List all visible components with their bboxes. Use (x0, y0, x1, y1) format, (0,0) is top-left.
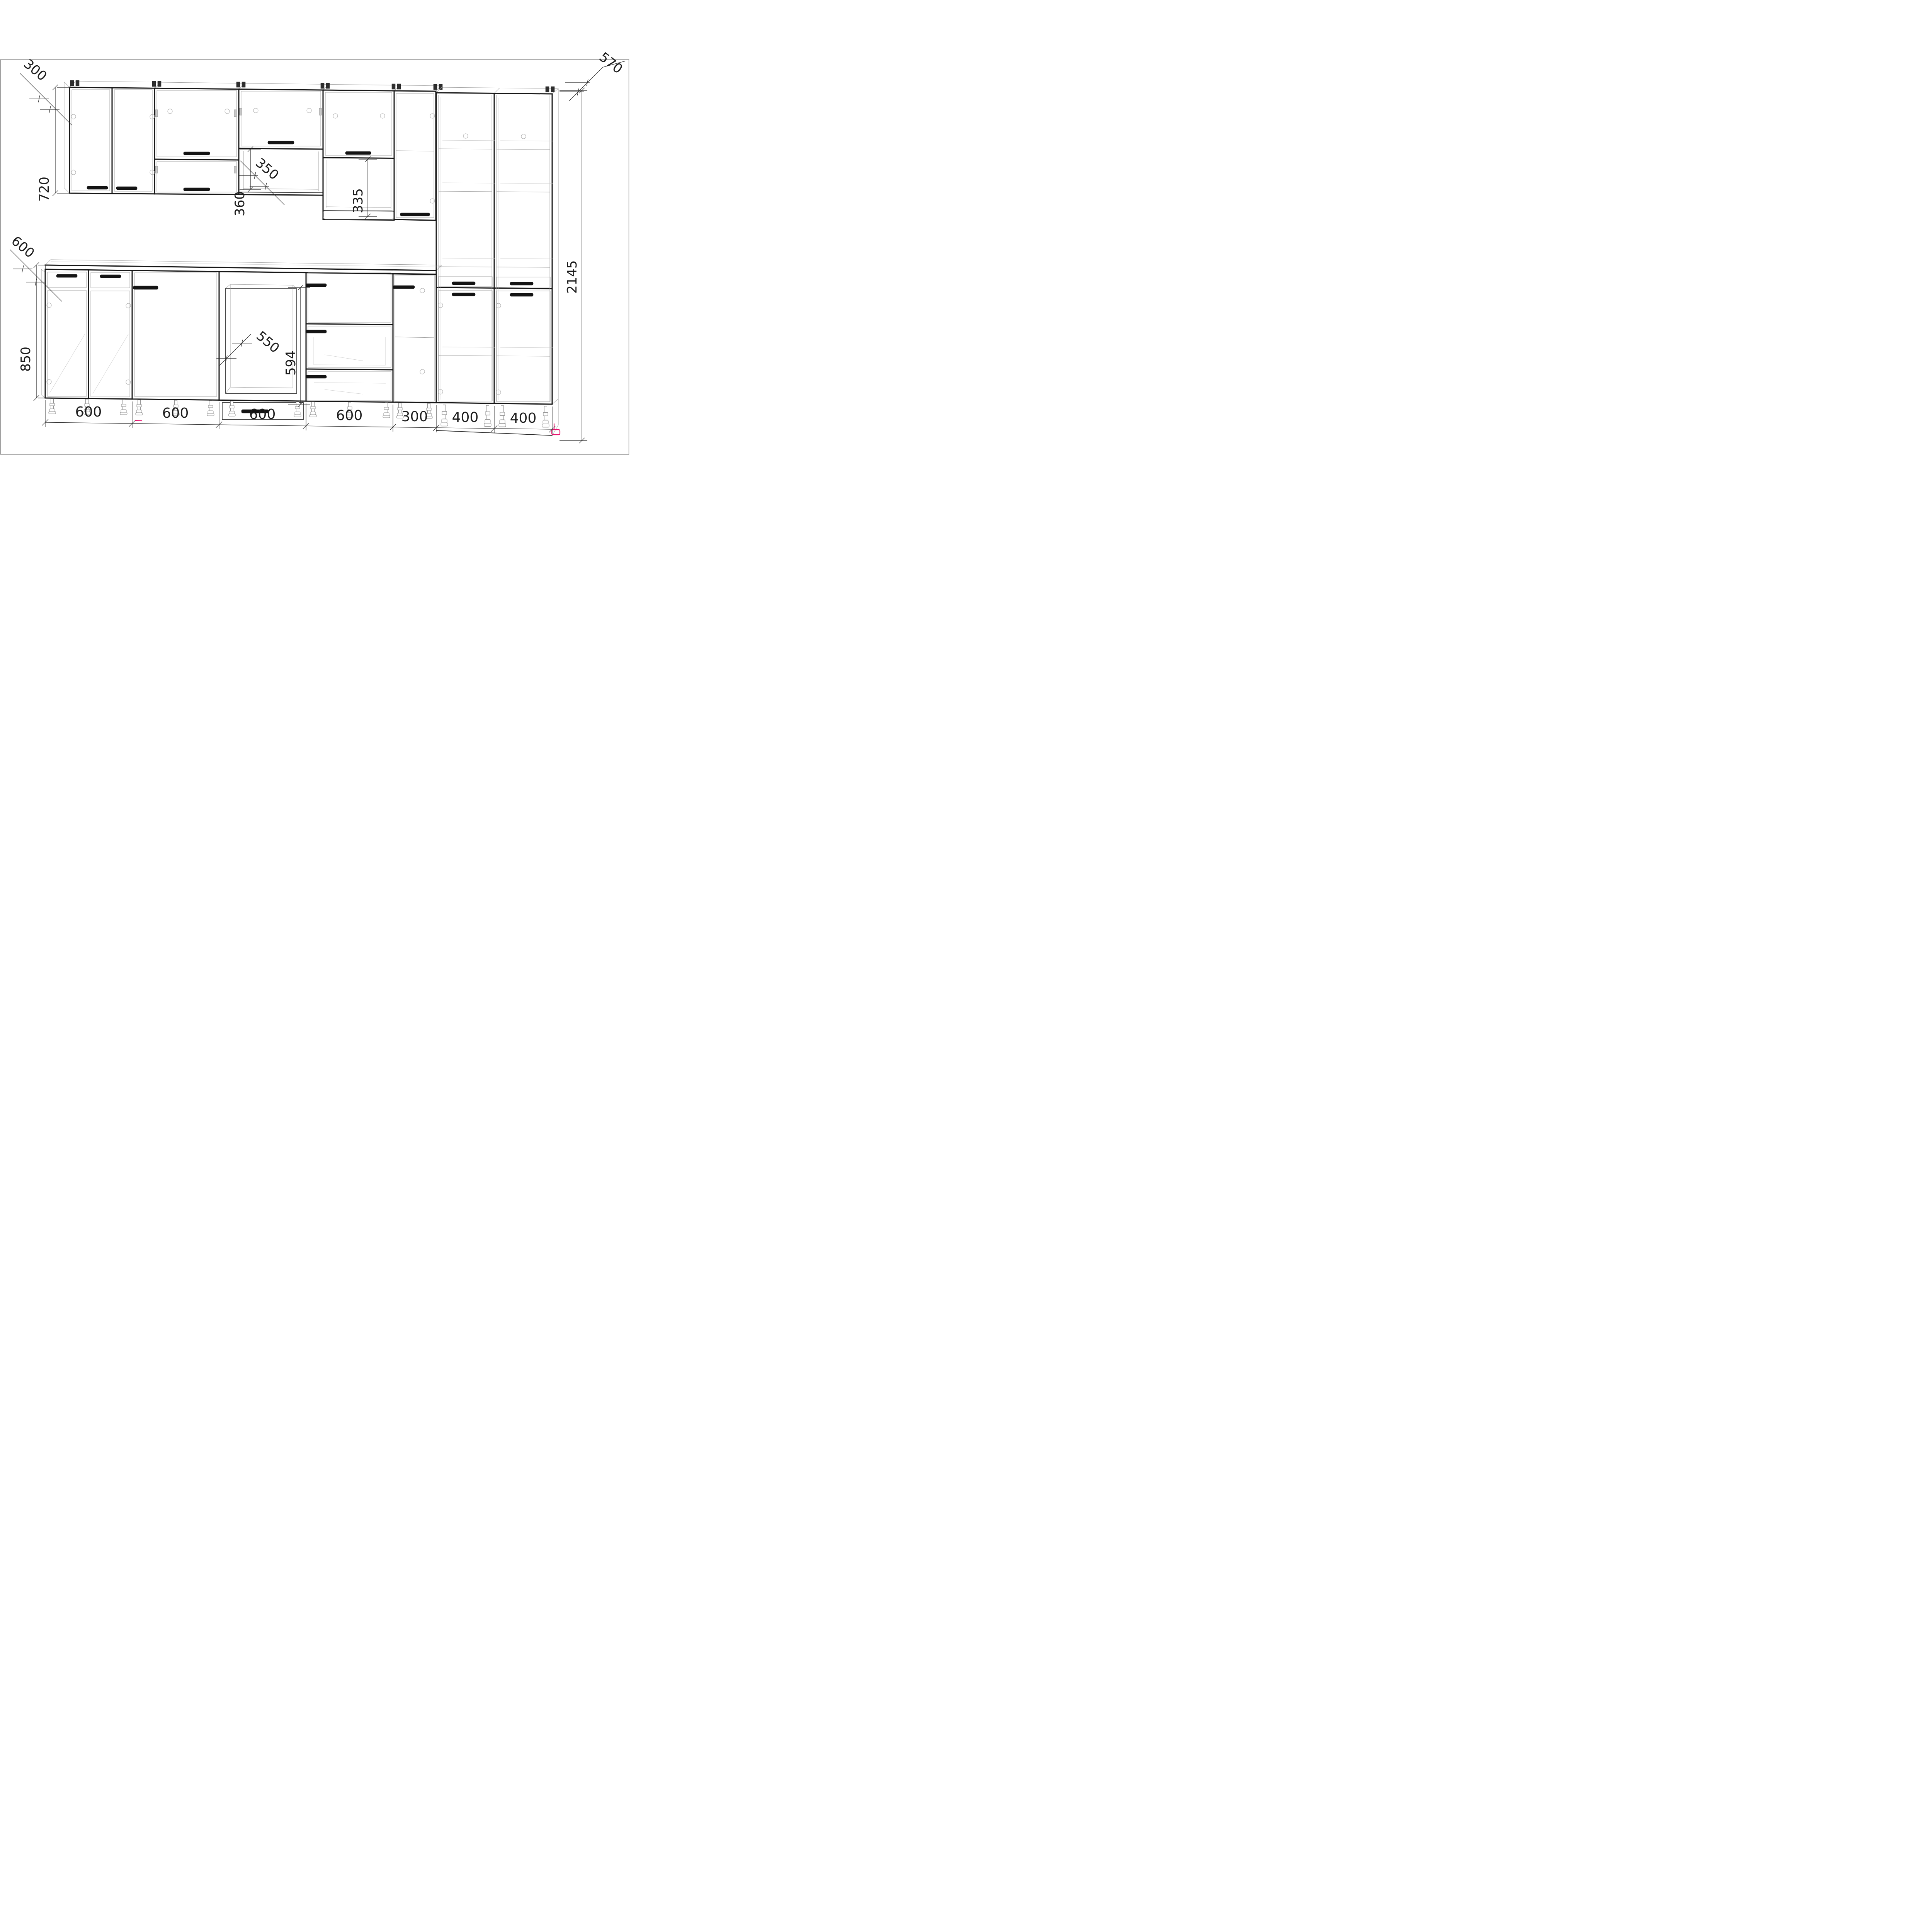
dimension-tall-height: 2145 (560, 88, 587, 443)
dim-label-width-6: 400 (452, 410, 479, 425)
dim-label-oven-width: 550 (253, 328, 282, 356)
tall-drawer-handle (452, 282, 475, 285)
base-cabinet-three-drawers (306, 273, 393, 402)
wall-cabinet-300 (394, 91, 436, 220)
dim-label-oven-height: 594 (283, 350, 299, 376)
dim-label-wall-depth: 300 (20, 56, 49, 84)
wall-cabinet-flip-open (239, 89, 323, 196)
dim-label-worktop-depth: 600 (8, 233, 37, 261)
dim-label-open-height: 360 (232, 191, 248, 216)
drawer-handle (56, 274, 77, 277)
dim-label-width-7: 400 (510, 410, 537, 426)
dim-label-tall-height: 2145 (565, 260, 580, 294)
dim-label-shelf-depth: 350 (252, 155, 281, 183)
wall-cabinet-row (64, 80, 558, 220)
dimension-tall-depth: 570 (560, 49, 626, 101)
base-cabinet-300 (393, 274, 436, 403)
drawer-handle (306, 375, 327, 378)
dim-label-base-height: 850 (18, 347, 34, 372)
base-cabinet-doors-drawers (41, 269, 132, 399)
tall-cabinet-columns (436, 87, 560, 435)
accent-mark-pink (135, 420, 142, 421)
dim-label-tall-depth: 570 (596, 49, 626, 77)
door-handle (400, 213, 430, 216)
dimension-oven-width: 550 (216, 328, 282, 366)
flip-door-handle (268, 141, 294, 144)
flip-door-handle (345, 151, 371, 155)
drawer-handle (306, 330, 327, 333)
door-handle (133, 286, 158, 289)
dim-label-width-4: 600 (336, 408, 363, 423)
door-handle (116, 187, 137, 190)
kitchen-elevation-drawing: 300 720 360 350 (0, 0, 629, 515)
open-shelf-front (239, 192, 323, 193)
door-handle (393, 286, 415, 289)
dimension-wall-height: 720 (37, 85, 71, 202)
tall-shelves (439, 140, 553, 356)
dimensions: 300 720 360 350 (8, 49, 625, 443)
tall-door-handle (510, 293, 533, 296)
flip-door-handle (184, 152, 210, 155)
base-cabinet-full-door (132, 270, 219, 421)
dimension-niche-height: 335 (350, 156, 377, 219)
tall-door-handle (452, 293, 475, 296)
drawer-handle (100, 275, 121, 278)
door-handle (87, 186, 108, 189)
dimension-worktop-depth: 600 (8, 233, 62, 301)
base-cabinet-row (41, 260, 442, 421)
sheet-border (1, 60, 629, 454)
dim-label-width-3: 600 (249, 406, 276, 422)
wall-cabinet-two-doors (64, 82, 155, 194)
drawing-sheet: 300 720 360 350 (0, 0, 629, 515)
drawer-handle (306, 284, 327, 287)
dim-label-width-2: 600 (162, 405, 189, 421)
flip-door-handle (184, 188, 210, 191)
dim-label-width-5: 300 (401, 409, 428, 425)
dim-label-wall-height: 720 (37, 177, 52, 202)
wall-cabinet-flip-doors (155, 88, 239, 194)
dim-label-width-1: 600 (75, 404, 102, 420)
dim-label-niche-height: 335 (350, 188, 366, 213)
tall-drawer-handle (510, 282, 533, 285)
dimension-base-height: 850 (18, 262, 47, 401)
